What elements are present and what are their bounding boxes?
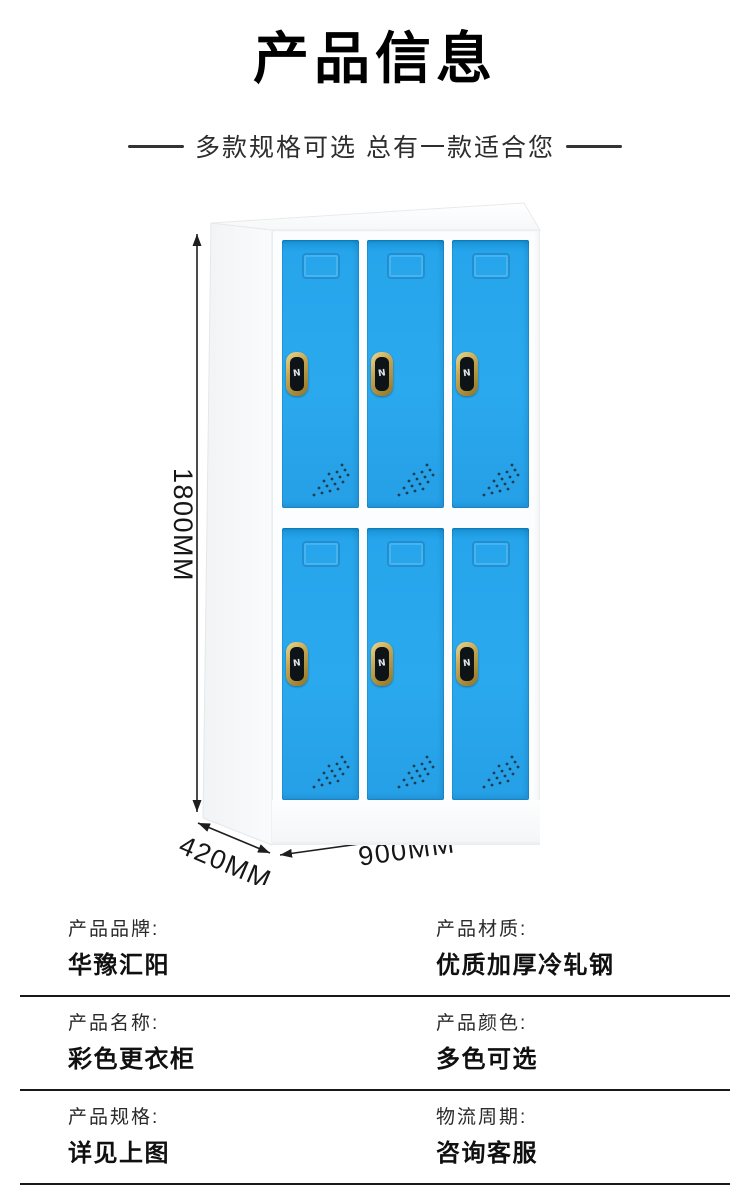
door-lock — [286, 642, 308, 686]
card-label-holder — [472, 253, 510, 279]
vent-holes-icon — [396, 747, 436, 791]
spec-label: 物流周期: — [436, 1105, 730, 1131]
spec-label: 产品材质: — [436, 917, 730, 943]
spec-value: 咨询客服 — [436, 1137, 730, 1171]
cabinet-side-panel — [203, 223, 272, 845]
door-lock — [371, 352, 393, 396]
card-label-holder — [387, 541, 425, 567]
locker-door — [452, 240, 529, 508]
subtitle-text: 多款规格可选 总有一款适合您 — [195, 128, 555, 164]
locker-door — [367, 528, 444, 800]
spec-cell-material: 产品材质: 优质加厚冷轧钢 — [388, 917, 730, 983]
card-label-holder — [387, 253, 425, 279]
height-dimension-label: 1800MM — [168, 468, 198, 582]
door-lock — [456, 642, 478, 686]
locker-door — [452, 528, 529, 800]
spec-cell-size: 产品规格: 详见上图 — [20, 1105, 388, 1171]
spec-row: 产品名称: 彩色更衣柜 产品颜色: 多色可选 — [20, 997, 730, 1091]
vent-holes-icon — [311, 747, 351, 791]
locker-door — [282, 240, 359, 508]
vent-holes-icon — [396, 455, 436, 499]
spec-value: 优质加厚冷轧钢 — [436, 949, 730, 983]
spec-value: 彩色更衣柜 — [68, 1043, 388, 1077]
spec-table: 产品品牌: 华豫汇阳 产品材质: 优质加厚冷轧钢 产品名称: 彩色更衣柜 产品颜… — [20, 903, 730, 1185]
door-lock — [286, 352, 308, 396]
spec-cell-color: 产品颜色: 多色可选 — [388, 1011, 730, 1077]
card-label-holder — [472, 541, 510, 567]
spec-row: 产品品牌: 华豫汇阳 产品材质: 优质加厚冷轧钢 — [20, 903, 730, 997]
door-lock — [456, 352, 478, 396]
subtitle-dash-left — [128, 145, 184, 148]
spec-value: 多色可选 — [436, 1043, 730, 1077]
spec-cell-logistics: 物流周期: 咨询客服 — [388, 1105, 730, 1171]
page-title: 产品信息 — [0, 26, 750, 92]
product-info-page: 产品信息 多款规格可选 总有一款适合您 1800MM — [0, 0, 750, 1201]
cabinet-top-panel — [211, 203, 540, 230]
locker-door — [367, 240, 444, 508]
card-label-holder — [302, 541, 340, 567]
spec-label: 产品品牌: — [68, 917, 388, 943]
spec-value: 详见上图 — [68, 1137, 388, 1171]
vent-holes-icon — [481, 747, 521, 791]
spec-cell-brand: 产品品牌: 华豫汇阳 — [20, 917, 388, 983]
subtitle: 多款规格可选 总有一款适合您 — [0, 128, 750, 164]
door-lock — [371, 642, 393, 686]
spec-value: 华豫汇阳 — [68, 949, 388, 983]
spec-label: 产品名称: — [68, 1011, 388, 1037]
vent-holes-icon — [481, 455, 521, 499]
locker-front — [272, 230, 540, 845]
spec-cell-name: 产品名称: 彩色更衣柜 — [20, 1011, 388, 1077]
locker-door — [282, 528, 359, 800]
card-label-holder — [302, 253, 340, 279]
spec-row: 产品规格: 详见上图 物流周期: 咨询客服 — [20, 1091, 730, 1185]
subtitle-dash-right — [566, 145, 622, 148]
vent-holes-icon — [311, 455, 351, 499]
spec-label: 产品规格: — [68, 1105, 388, 1131]
spec-label: 产品颜色: — [436, 1011, 730, 1037]
